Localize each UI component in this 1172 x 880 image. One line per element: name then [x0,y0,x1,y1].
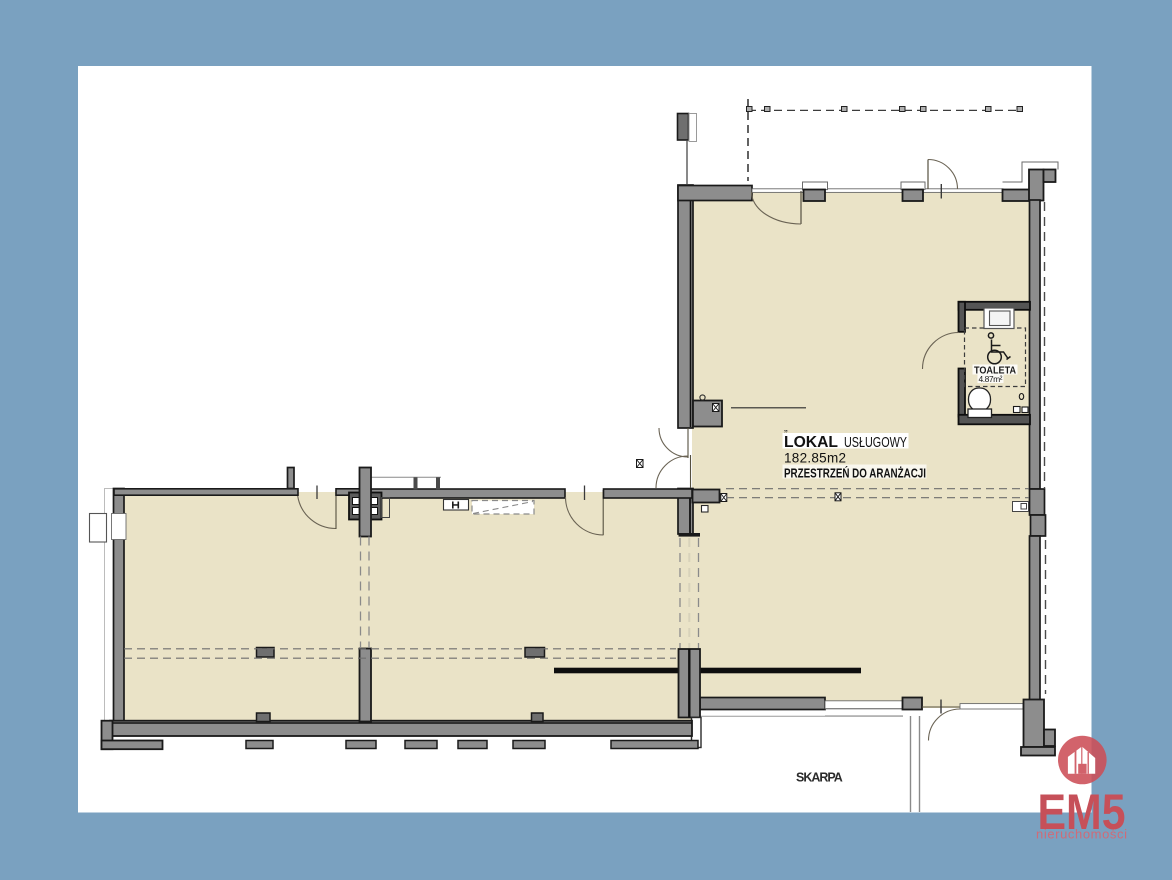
svg-text:nieruchomości: nieruchomości [1036,827,1127,842]
svg-text:4.87m²: 4.87m² [979,374,1003,384]
svg-text:PRZESTRZEŃ DO ARANŻACJI: PRZESTRZEŃ DO ARANŻACJI [784,466,926,481]
svg-text:SKARPA: SKARPA [796,771,844,785]
svg-text:LOKAL: LOKAL [784,434,838,451]
svg-text:„: „ [784,422,788,434]
svg-text:USŁUGOWY: USŁUGOWY [844,435,907,451]
svg-text:182.85m2: 182.85m2 [784,451,846,466]
